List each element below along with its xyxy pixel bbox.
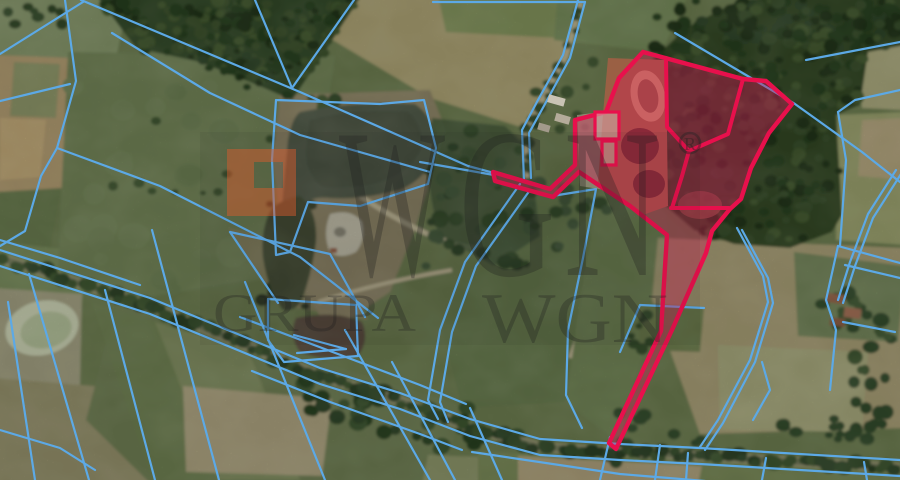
svg-text:WGN: WGN	[482, 280, 668, 358]
svg-text:R: R	[684, 134, 696, 154]
svg-text:GRUPA: GRUPA	[213, 283, 416, 343]
